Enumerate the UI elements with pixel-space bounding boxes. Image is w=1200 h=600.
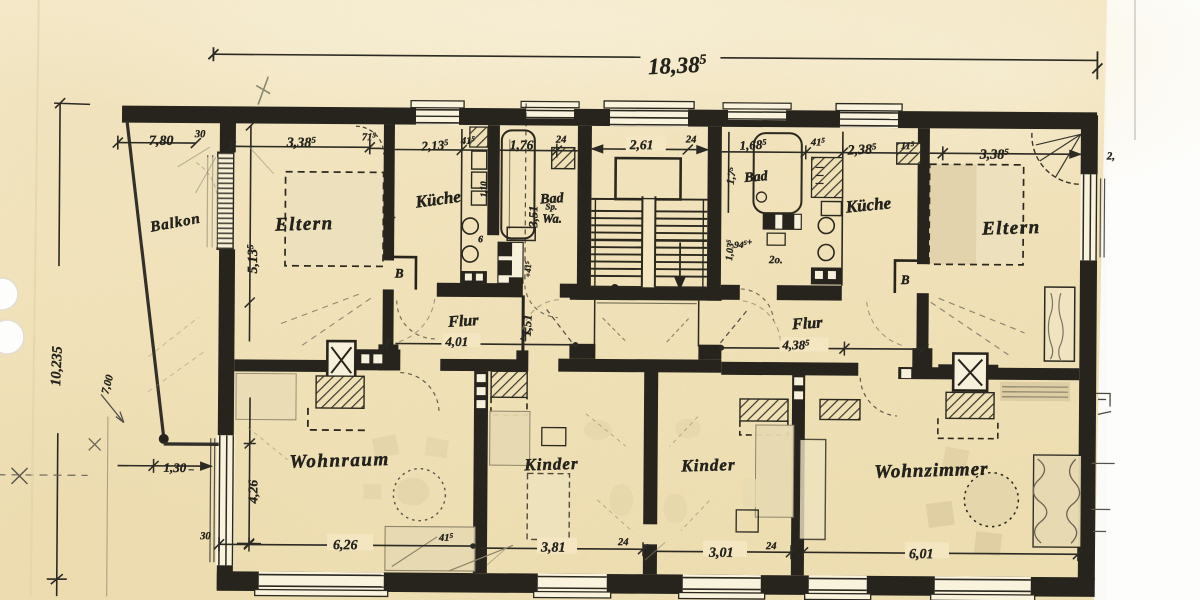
svg-text:4,26: 4,26 [245,480,260,505]
svg-text:Kinder: Kinder [523,454,579,475]
svg-text:Wa.: Wa. [542,212,562,226]
svg-text:B: B [900,272,910,287]
svg-text:Kinder: Kinder [680,455,736,476]
svg-text:18,385: 18,385 [647,52,707,80]
svg-text:1,76: 1,76 [510,137,534,152]
svg-text:3,81: 3,81 [540,541,566,556]
svg-text:Eltern: Eltern [274,213,334,236]
svg-text:Flur: Flur [791,314,824,333]
svg-text:24: 24 [765,541,777,552]
svg-text:Wohnzimmer: Wohnzimmer [874,459,989,483]
svg-text:1,10: 1,10 [478,181,488,197]
svg-text:30: 30 [199,531,211,542]
svg-text:1,51: 1,51 [520,314,535,337]
svg-text:2,: 2, [1106,150,1115,162]
svg-text:30: 30 [194,129,206,140]
svg-text:24: 24 [685,135,697,146]
svg-text:3,51: 3,51 [526,206,540,229]
svg-text:6,01: 6,01 [909,547,934,562]
svg-text:Sp.: Sp. [545,202,557,212]
svg-text:Flur: Flur [447,312,480,331]
svg-text:7,80: 7,80 [149,134,174,149]
svg-text:Bad: Bad [743,169,769,186]
svg-text:Eltern: Eltern [981,217,1041,240]
svg-text:6,26: 6,26 [333,538,358,553]
svg-text:6: 6 [478,235,483,245]
svg-text:4,01: 4,01 [444,334,468,349]
svg-text:24: 24 [555,135,567,146]
svg-text:2,61: 2,61 [629,137,654,152]
svg-text:24: 24 [617,537,629,548]
svg-text:Wohnraum: Wohnraum [289,449,390,473]
svg-text:10,235: 10,235 [48,346,66,387]
svg-text:2o.: 2o. [768,254,783,266]
svg-text:3,01: 3,01 [708,546,734,561]
svg-text:B: B [394,265,404,280]
